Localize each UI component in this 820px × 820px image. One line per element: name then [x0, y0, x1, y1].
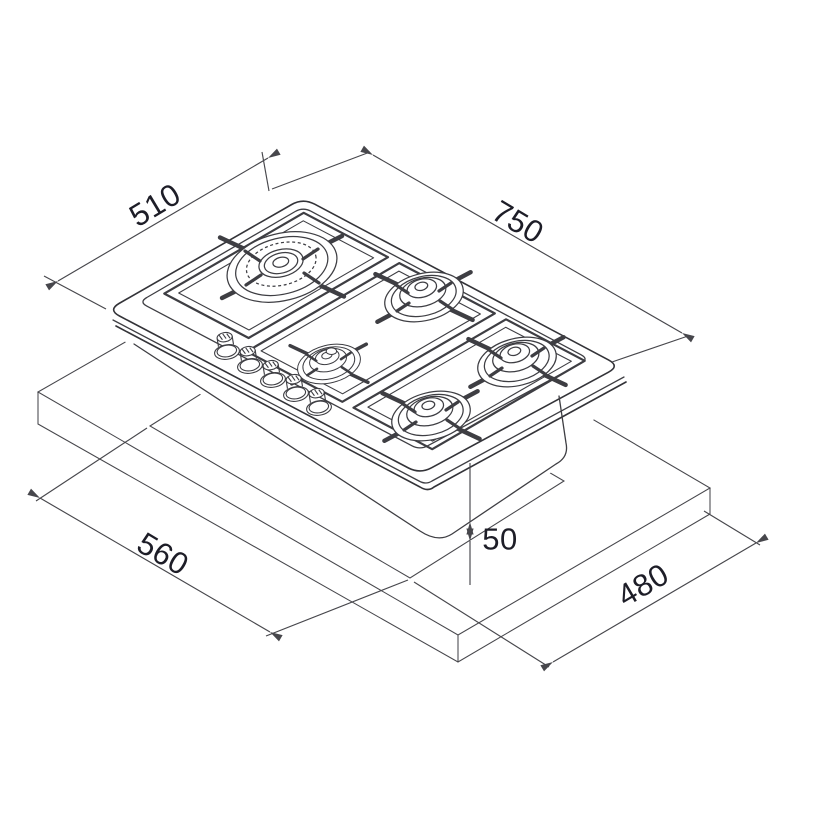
dim-label-cutout-width: 560 [131, 525, 195, 582]
dim-label-hob-depth: 510 [123, 176, 187, 233]
gas-hob [106, 192, 626, 549]
technical-drawing-page: 510 750 560 480 50 [0, 0, 820, 820]
dim-label-hob-width: 750 [486, 193, 550, 250]
dim-label-cutout-depth: 480 [611, 556, 675, 613]
hob-installation-diagram: 510 750 560 480 50 [0, 0, 820, 820]
dim-cutout-depth: 480 [414, 511, 760, 667]
dim-label-rear-clearance: 50 [482, 522, 517, 557]
